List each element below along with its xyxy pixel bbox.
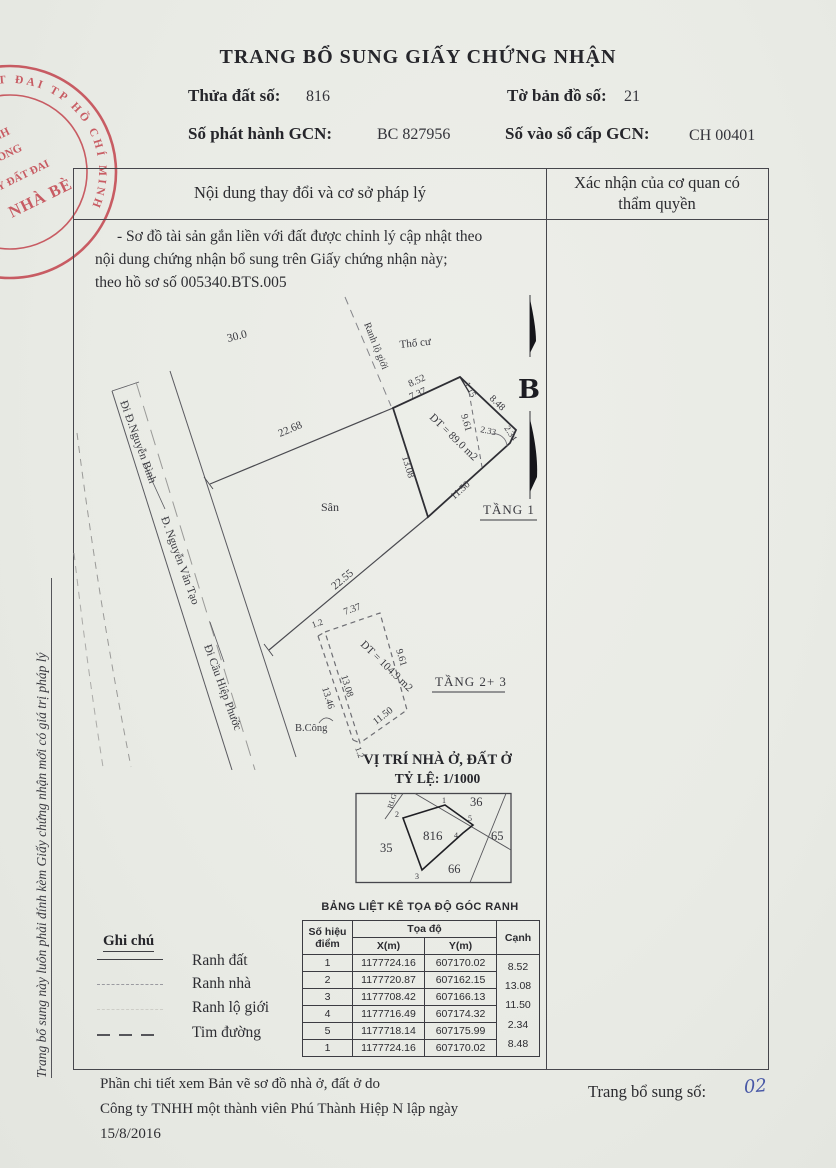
supplement-page-number: 02: [744, 1076, 767, 1097]
issue-number-value: BC 827956: [377, 126, 450, 144]
legend-dashdot-line: [97, 1034, 163, 1036]
dim-9-61-f2: 9.61: [393, 648, 409, 668]
parcel-816-label: 816: [423, 828, 443, 843]
north-arrow: B: [518, 295, 540, 499]
point-4-label: 4: [454, 831, 458, 840]
dim-1-2-top: 1.2: [310, 617, 324, 630]
col-x-header: X(m): [353, 938, 425, 955]
footer-line-1: Phần chi tiết xem Bản vẽ sơ đồ nhà ở, đấ…: [100, 1076, 380, 1093]
col-edge-header: Cạnh: [497, 921, 540, 955]
certificate-supplement-page: TRANG BỔ SUNG GIẤY CHỨNG NHẬN ĐẤT ĐAI TP…: [0, 0, 836, 1168]
footer-line-3: 15/8/2016: [100, 1126, 161, 1143]
site-plan-drawing: 8.52 7.37 1.15 8.48 9.61 2.33 2.34 11.50…: [73, 295, 545, 770]
floor23-title: TẦNG 2+ 3: [435, 674, 507, 689]
col-coord-header: Tọa độ: [353, 921, 497, 938]
road-cau-hiep-phuoc-label: Đi Cầu Hiệp Phước: [201, 643, 244, 733]
parcel-number-label: Thửa đất số:: [188, 86, 280, 106]
rlg-label: RLG: [385, 792, 398, 810]
left-column-header: Nội dung thay đổi và cơ sở pháp lý: [74, 183, 546, 203]
map-sheet-label: Tờ bản đồ số:: [507, 86, 607, 106]
coordinate-table-title: BẢNG LIỆT KÊ TỌA ĐỘ GÓC RANH: [300, 901, 540, 913]
footer-line-2: Công ty TNHH một thành viên Phú Thành Hi…: [100, 1101, 458, 1118]
yard-label: Sân: [321, 500, 339, 514]
dim-7-37-f2: 7.37: [342, 601, 362, 617]
dim-13-46: 13.46: [319, 686, 336, 711]
note-line-1: - Sơ đồ tài sản gắn liền với đất được ch…: [95, 226, 547, 249]
floor23-area-label: DT = 104.9 m2: [358, 639, 415, 695]
note-line-3: theo hồ sơ số 005340.BTS.005: [95, 272, 547, 295]
legend-faint-line: [97, 1009, 163, 1010]
balcony-label: B.Công: [295, 723, 328, 734]
point-5-label: 5: [468, 814, 472, 823]
dim-1-15: 1.15: [462, 380, 478, 399]
legend-ranh-nha: Ranh nhà: [192, 975, 251, 993]
ranh-lo-gioi-label: Ranh lộ giới: [361, 321, 390, 371]
dim-11-50-f1: 11.50: [449, 479, 473, 502]
location-map-scale: TỶ LỆ: 1/1000: [330, 771, 545, 787]
legend-dashed-line: [97, 984, 163, 985]
floor1-area-label: DT = 89.0 m2: [427, 412, 480, 464]
dim-13-08-f2: 13.08: [338, 674, 355, 699]
dim-11-50-f2: 11.50: [371, 705, 395, 727]
location-map-title: VỊ TRÍ NHÀ Ở, ĐẤT Ở: [330, 752, 545, 769]
dim-22-68: 22.68: [276, 419, 304, 440]
coordinate-table: Số hiệu điểm Tọa độ Cạnh X(m) Y(m) 1 117…: [302, 920, 540, 1057]
dim-8-48: 8.48: [487, 393, 507, 413]
parcel-66-label: 66: [448, 862, 461, 876]
right-header-line1: Xác nhận của cơ quan có: [546, 172, 768, 193]
point-3-label: 3: [415, 872, 419, 881]
stamp-line-2: PHÒNG: [0, 140, 24, 171]
note-line-2: nội dung chứng nhận bổ sung trên Giấy ch…: [95, 249, 547, 272]
legend-ranh-dat: Ranh đất: [192, 952, 248, 970]
edge-values: 8.52 13.08 11.50 2.34 8.48: [497, 955, 540, 1057]
header-divider: [74, 219, 768, 220]
point-2-label: 2: [395, 810, 399, 819]
parcel-36-label: 36: [470, 795, 483, 809]
parcel-35-label: 35: [380, 841, 393, 855]
legend-title: Ghi chú: [103, 933, 154, 952]
legend: Ghi chú Ranh đất Ranh nhà Ranh lộ giới T…: [97, 933, 307, 1053]
parcel-65-label: 65: [491, 829, 504, 843]
side-note: Trang bổ sung này luôn phải đính kèm Giấ…: [34, 578, 52, 1078]
registry-number-label: Số vào sổ cấp GCN:: [505, 124, 650, 144]
parcel-number-value: 816: [306, 88, 330, 106]
dim-13-08-f1: 13.08: [399, 455, 416, 480]
col-y-header: Y(m): [425, 938, 497, 955]
point-1-label: 1: [442, 796, 446, 805]
map-sheet-value: 21: [624, 88, 640, 106]
north-letter: B: [518, 375, 540, 405]
legend-tim-duong: Tim đường: [192, 1024, 261, 1042]
road-nguyen-binh-label: Đi Đ.Nguyễn Bình: [117, 399, 159, 486]
right-column-header: Xác nhận của cơ quan có thẩm quyền: [546, 172, 768, 214]
legend-ranh-lo-gioi: Ranh lộ giới: [192, 999, 269, 1017]
issue-number-label: Số phát hành GCN:: [188, 124, 332, 144]
amendment-note: - Sơ đồ tài sản gắn liền với đất được ch…: [95, 226, 547, 295]
column-divider: [546, 169, 547, 1069]
road-nguyen-van-tao-label: Đ. Nguyễn Văn Tạo: [158, 515, 202, 607]
dim-30-0: 30.0: [226, 328, 249, 345]
col-point-header: Số hiệu điểm: [303, 921, 353, 955]
coord-row: 1 1177724.16 607170.02 8.52 13.08 11.50 …: [303, 955, 540, 972]
location-map: RLG 1 2 3 4 5 816 36 65 35 66: [355, 789, 512, 887]
right-header-line2: thẩm quyền: [546, 193, 768, 214]
supplement-page-label: Trang bổ sung số:: [588, 1082, 706, 1102]
dim-9-61-f1: 9.61: [458, 413, 473, 433]
dim-2-33: 2.33: [480, 424, 498, 437]
tho-cu-label: Thổ cư: [399, 336, 432, 351]
registry-number-value: CH 00401: [689, 127, 755, 145]
legend-solid-line: [97, 959, 163, 960]
floor1-title: TẦNG 1: [483, 502, 535, 517]
